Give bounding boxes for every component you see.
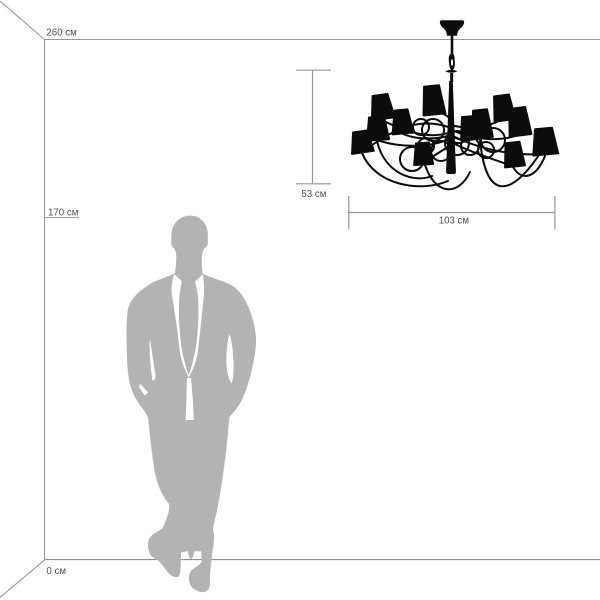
svg-text:170 см: 170 см [48, 207, 78, 218]
svg-text:260 см: 260 см [46, 28, 76, 39]
svg-text:103 см: 103 см [439, 215, 469, 226]
svg-text:53 см: 53 см [301, 189, 326, 200]
svg-text:0 см: 0 см [46, 566, 66, 577]
